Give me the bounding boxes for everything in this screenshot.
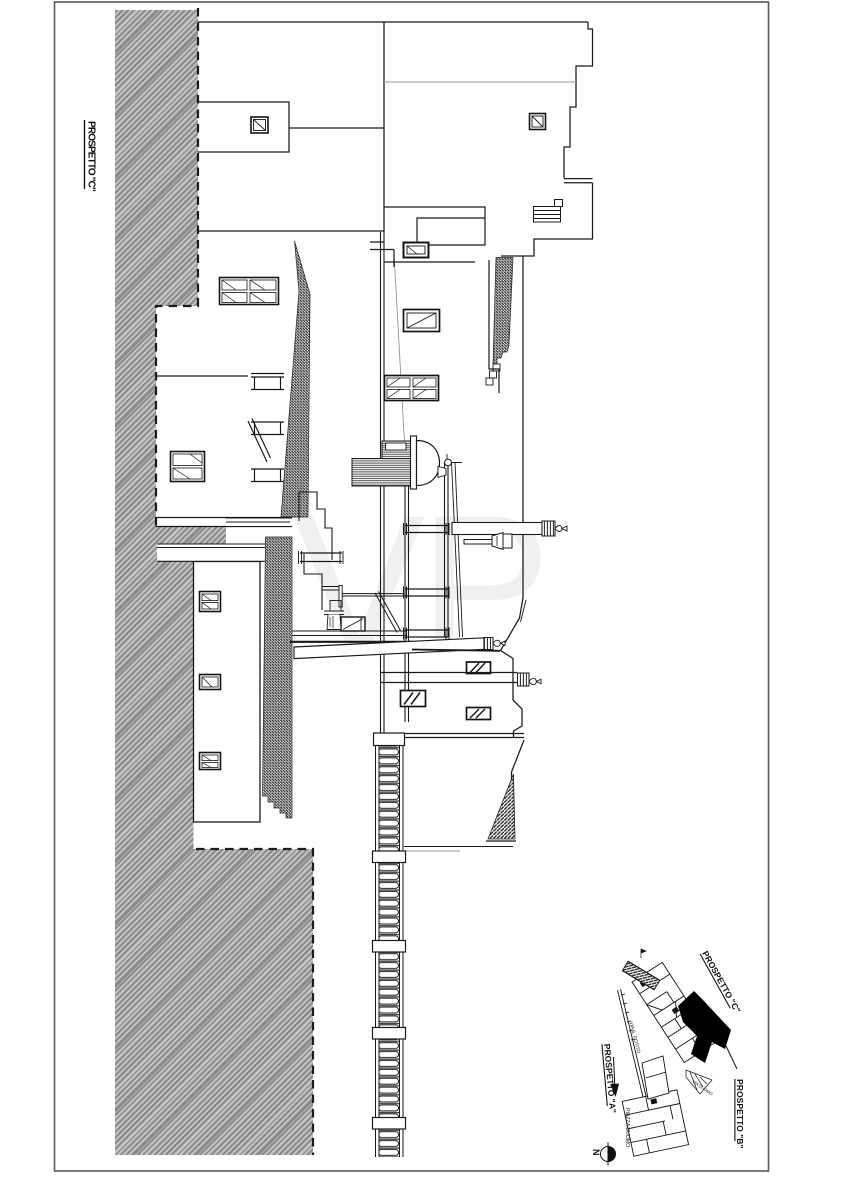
svg-text:PIAZZA DUOMO: PIAZZA DUOMO [624, 1108, 630, 1147]
svg-text:PROSPETTO "B": PROSPETTO "B" [735, 1079, 745, 1149]
svg-text:N: N [591, 1149, 601, 1156]
svg-text:VP: VP [293, 474, 545, 695]
svg-text:PROSPETTO "C": PROSPETTO "C" [86, 121, 97, 192]
